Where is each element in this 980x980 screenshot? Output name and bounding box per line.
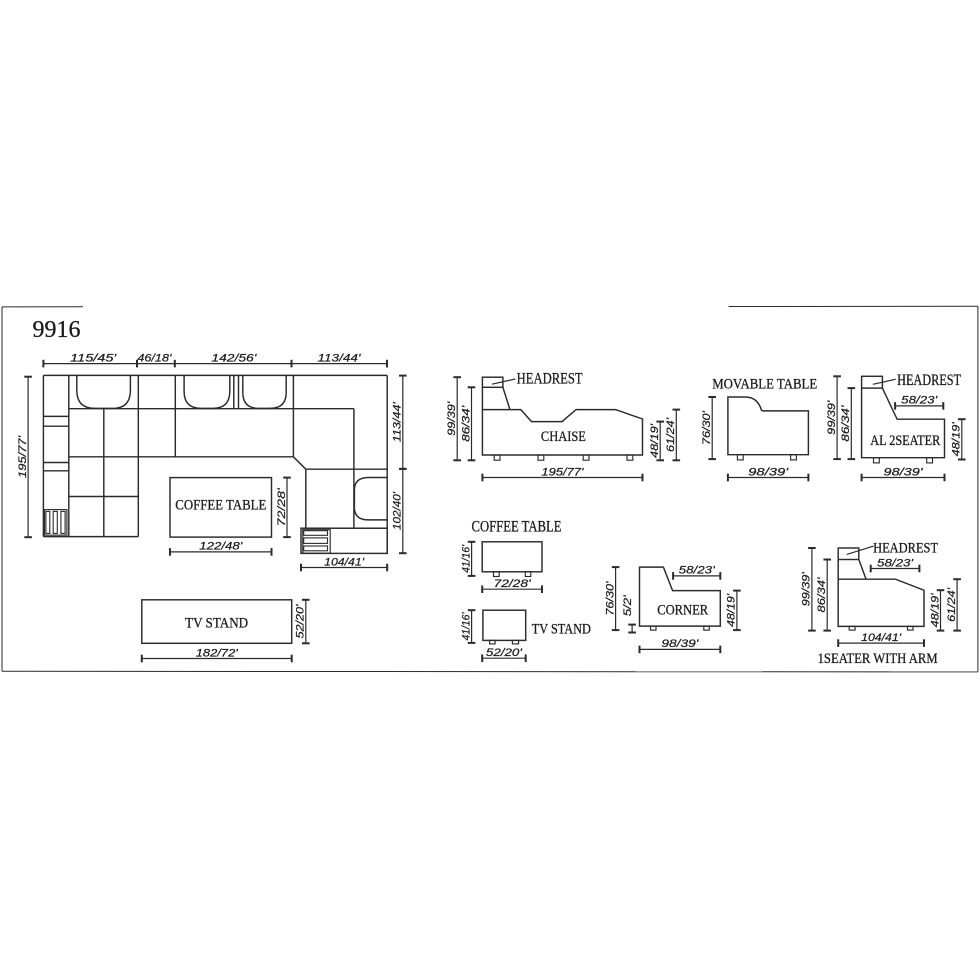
svg-text:41/16': 41/16' (460, 544, 472, 573)
svg-text:COFFEE TABLE: COFFEE TABLE (175, 498, 266, 514)
svg-text:58/23': 58/23' (679, 565, 716, 577)
svg-text:195/77': 195/77' (17, 435, 29, 478)
svg-text:195/77': 195/77' (541, 466, 584, 478)
svg-text:9916: 9916 (33, 316, 81, 343)
svg-text:41/16': 41/16' (460, 612, 472, 641)
svg-text:HEADREST: HEADREST (873, 541, 938, 557)
svg-text:99/39': 99/39' (446, 401, 458, 436)
svg-text:76/30': 76/30' (701, 410, 713, 445)
svg-text:99/39': 99/39' (801, 571, 813, 606)
svg-text:61/24': 61/24' (946, 587, 958, 622)
svg-text:61/24': 61/24' (665, 417, 677, 452)
svg-text:58/23': 58/23' (901, 395, 938, 407)
svg-text:48/19': 48/19' (951, 421, 963, 456)
svg-text:1SEATER WITH ARM: 1SEATER WITH ARM (818, 651, 938, 667)
svg-text:TV STAND: TV STAND (185, 616, 248, 632)
svg-text:COFFEE TABLE: COFFEE TABLE (472, 519, 562, 536)
svg-text:72/28': 72/28' (276, 487, 288, 526)
svg-text:122/48': 122/48' (199, 541, 243, 553)
svg-text:5/2': 5/2' (622, 594, 634, 616)
svg-text:102/40': 102/40' (392, 491, 404, 530)
svg-text:113/44': 113/44' (392, 401, 404, 442)
svg-text:HEADREST: HEADREST (517, 370, 583, 387)
svg-text:142/56': 142/56' (211, 353, 257, 365)
svg-text:48/19': 48/19' (929, 592, 941, 627)
svg-text:98/39': 98/39' (661, 638, 699, 650)
svg-text:MOVABLE TABLE: MOVABLE TABLE (712, 377, 817, 393)
svg-text:86/34': 86/34' (460, 405, 472, 442)
svg-text:99/39': 99/39' (826, 400, 838, 435)
svg-text:CORNER: CORNER (657, 603, 708, 619)
svg-text:86/34': 86/34' (816, 577, 828, 613)
svg-text:72/28': 72/28' (494, 578, 532, 590)
svg-text:52/20': 52/20' (295, 604, 307, 639)
svg-text:98/39': 98/39' (884, 466, 924, 478)
svg-text:CHAISE: CHAISE (541, 429, 586, 445)
svg-text:TV STAND: TV STAND (532, 622, 591, 638)
svg-text:58/23': 58/23' (877, 557, 914, 569)
svg-text:48/19': 48/19' (649, 423, 661, 458)
svg-text:76/30': 76/30' (604, 581, 616, 616)
svg-text:86/34': 86/34' (840, 405, 852, 442)
svg-text:98/39': 98/39' (748, 466, 789, 478)
svg-text:113/44': 113/44' (318, 353, 362, 365)
svg-text:104/41': 104/41' (324, 556, 365, 568)
svg-text:AL 2SEATER: AL 2SEATER (870, 433, 940, 449)
svg-text:104/41': 104/41' (861, 632, 902, 644)
svg-text:182/72': 182/72' (196, 647, 239, 659)
svg-text:115/45': 115/45' (70, 353, 117, 365)
svg-text:HEADREST: HEADREST (897, 372, 961, 389)
svg-text:46/18': 46/18' (137, 353, 172, 365)
svg-text:48/19': 48/19' (726, 593, 738, 627)
svg-text:52/20': 52/20' (486, 647, 523, 659)
